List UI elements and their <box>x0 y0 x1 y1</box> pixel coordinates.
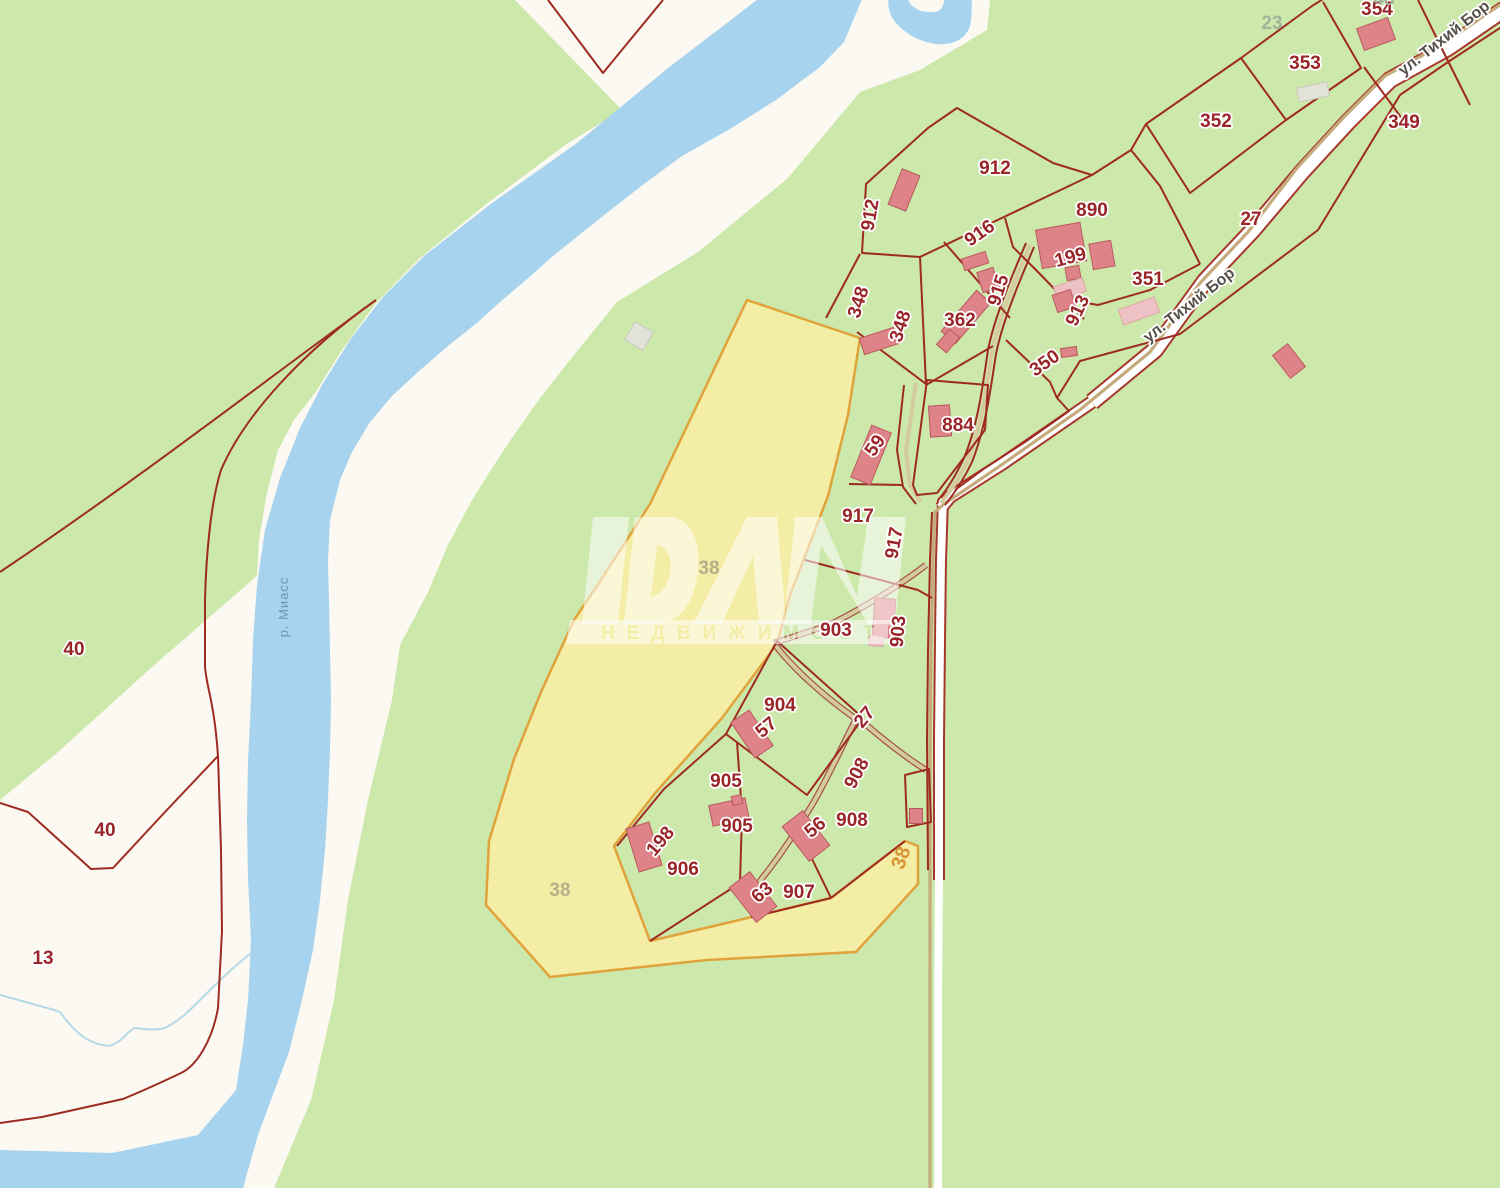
svg-text:905: 905 <box>710 771 742 792</box>
svg-text:353: 353 <box>1289 53 1321 74</box>
svg-text:38: 38 <box>698 558 719 579</box>
svg-text:903: 903 <box>887 615 911 648</box>
svg-text:907: 907 <box>783 882 815 903</box>
svg-text:362: 362 <box>944 310 976 331</box>
svg-text:23: 23 <box>1261 13 1282 34</box>
svg-text:38: 38 <box>549 880 570 901</box>
svg-text:349: 349 <box>1388 112 1420 133</box>
svg-text:908: 908 <box>836 810 868 831</box>
svg-text:912: 912 <box>979 158 1011 179</box>
svg-text:905: 905 <box>721 816 753 837</box>
svg-text:27: 27 <box>1240 209 1261 230</box>
svg-text:903: 903 <box>820 620 852 641</box>
svg-text:917: 917 <box>842 506 874 527</box>
svg-text:890: 890 <box>1076 200 1108 221</box>
svg-text:904: 904 <box>764 695 796 716</box>
svg-text:р. Миасс: р. Миасс <box>276 577 291 638</box>
svg-text:48: 48 <box>1373 0 1394 10</box>
svg-text:884: 884 <box>942 415 974 436</box>
svg-text:40: 40 <box>63 639 84 660</box>
svg-text:40: 40 <box>94 820 115 841</box>
svg-text:351: 351 <box>1132 269 1164 290</box>
svg-text:352: 352 <box>1200 111 1232 132</box>
svg-text:906: 906 <box>667 859 699 880</box>
svg-text:13: 13 <box>32 948 53 969</box>
